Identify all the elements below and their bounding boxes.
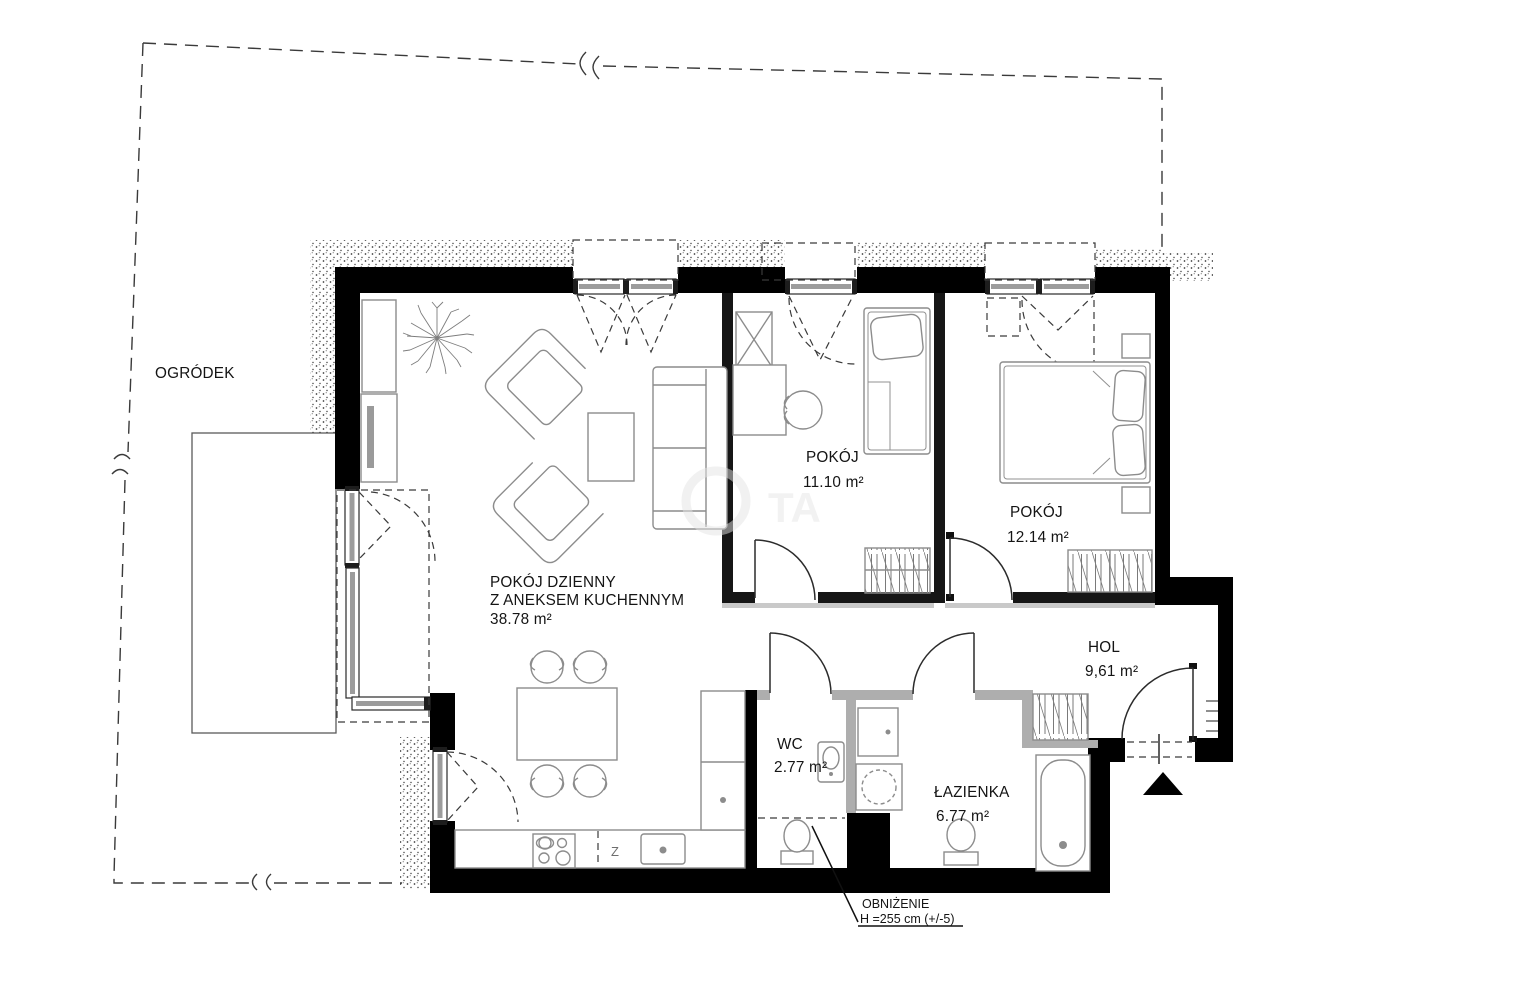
dining-chair bbox=[530, 765, 563, 797]
living-room-label-line2: Z ANEKSEM KUCHENNYM bbox=[490, 592, 684, 609]
double-bed bbox=[1000, 362, 1150, 483]
room2-balcony-door-window bbox=[985, 279, 1095, 294]
kitchen-sink-symbol: Z bbox=[611, 844, 619, 859]
cabinet bbox=[858, 708, 898, 756]
bathroom-area: 6.77 m² bbox=[936, 808, 989, 825]
room2-door bbox=[946, 532, 1012, 601]
bathtub bbox=[1036, 755, 1090, 871]
armchair bbox=[481, 325, 595, 439]
wardrobe-rail bbox=[865, 548, 930, 593]
floor-plan-page: TA OGRÓDEK POKÓJ DZIENNY Z ANEKSEM KUCHE… bbox=[0, 0, 1518, 1000]
kitchen-tall-cabinet bbox=[701, 691, 745, 830]
living-room-area: 38.78 m² bbox=[490, 611, 552, 628]
room2-area: 12.14 m² bbox=[1007, 529, 1069, 546]
room1-label: POKÓJ bbox=[806, 449, 859, 466]
wc-door bbox=[770, 633, 831, 694]
plant bbox=[403, 302, 474, 374]
room2-label: POKÓJ bbox=[1010, 504, 1063, 521]
hall-label: HOL bbox=[1088, 639, 1120, 656]
southwest-terrace-door bbox=[433, 747, 447, 825]
entrance-marker-triangle bbox=[1143, 772, 1183, 795]
ceiling-note-line1: OBNIŻENIE bbox=[862, 897, 929, 911]
wc-area: 2.77 m² bbox=[774, 759, 827, 776]
ceiling-note-line2: H =255 cm (+/-5) bbox=[860, 912, 954, 926]
tv bbox=[367, 406, 374, 468]
washing-machine bbox=[856, 764, 902, 810]
desk bbox=[733, 365, 786, 435]
dining-table-set bbox=[517, 651, 617, 797]
floor-plan-drawing: TA OGRÓDEK POKÓJ DZIENNY Z ANEKSEM KUCHE… bbox=[0, 0, 1518, 1000]
tv-cabinet bbox=[361, 394, 397, 482]
kitchen-counter bbox=[455, 830, 745, 868]
wardrobe bbox=[736, 312, 772, 367]
coffee-table bbox=[588, 413, 634, 481]
wardrobe-rail bbox=[1068, 550, 1152, 592]
bathroom-label: ŁAZIENKA bbox=[934, 784, 1010, 801]
shelf bbox=[362, 300, 396, 392]
nightstand bbox=[1122, 334, 1150, 358]
terrace bbox=[192, 433, 336, 733]
room1-balcony-door-window bbox=[785, 279, 857, 294]
toilet bbox=[944, 819, 978, 865]
single-bed bbox=[864, 308, 930, 454]
dining-chair bbox=[573, 651, 606, 683]
room1-door bbox=[755, 540, 815, 600]
watermark-text: TA bbox=[768, 484, 821, 531]
room1-area: 11.10 m² bbox=[803, 474, 864, 491]
garden-label: OGRÓDEK bbox=[155, 365, 235, 382]
toilet bbox=[781, 820, 813, 864]
living-room-label-line1: POKÓJ DZIENNY bbox=[490, 574, 616, 591]
living-balcony-door-window bbox=[573, 279, 678, 294]
dining-chair bbox=[530, 651, 563, 683]
room2-furniture bbox=[1000, 334, 1152, 592]
wc-label: WC bbox=[777, 736, 803, 753]
radiator bbox=[1206, 701, 1218, 731]
nightstand bbox=[1122, 487, 1150, 513]
desk-chair bbox=[784, 391, 822, 429]
dining-chair bbox=[573, 765, 606, 797]
hall-area: 9,61 m² bbox=[1085, 663, 1138, 680]
bathroom-door bbox=[913, 633, 974, 694]
wardrobe-rail bbox=[1033, 694, 1088, 740]
armchair bbox=[489, 453, 603, 567]
west-terrace-door-window bbox=[345, 486, 430, 710]
